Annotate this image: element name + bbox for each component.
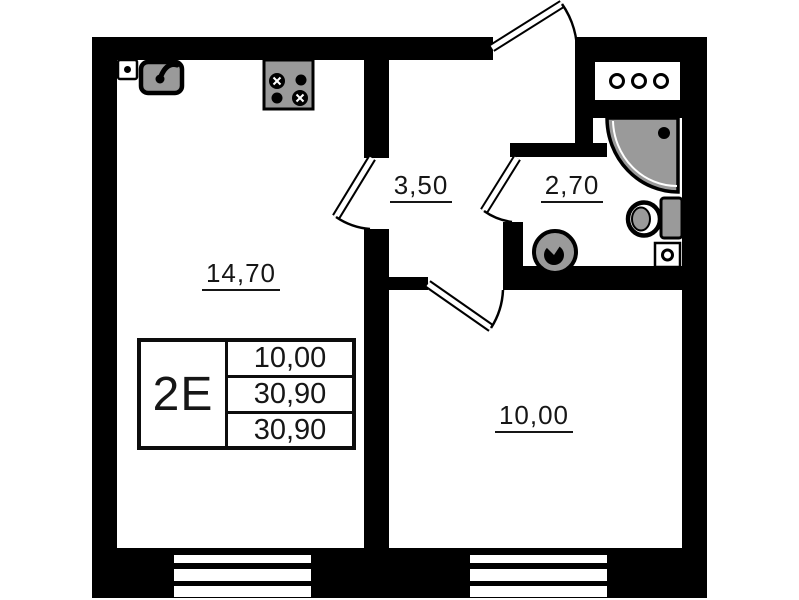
floor-plan: 14,70 3,50 2,70 10,00 2E 10,00 30,90 30,… <box>0 0 799 600</box>
entrance-door-icon <box>492 4 577 56</box>
toilet-icon <box>628 198 682 238</box>
stove-icon <box>264 60 313 109</box>
vent-grille-icon <box>595 62 680 100</box>
washbasin-icon <box>534 231 576 273</box>
shower-head-icon <box>658 127 670 139</box>
stamp-total-area: 30,90 <box>228 378 352 414</box>
living-room-door-icon <box>336 158 372 229</box>
bathroom-door-icon <box>484 158 517 222</box>
apartment-type-label: 2E <box>141 342 228 446</box>
stamp-total-area-with-balcony: 30,90 <box>228 414 352 447</box>
area-label-bedroom: 10,00 <box>489 400 579 433</box>
area-label-kitchen-living: 14,70 <box>196 258 286 291</box>
area-label-bathroom: 2,70 <box>532 170 612 203</box>
drain-box-icon <box>655 243 680 267</box>
kitchen-sink-icon <box>141 62 182 93</box>
shower-cabin-icon <box>607 118 678 192</box>
bedroom-door-icon <box>428 284 503 328</box>
apartment-stamp: 2E 10,00 30,90 30,90 <box>137 338 356 450</box>
power-outlet-icon <box>118 60 137 79</box>
stamp-living-area: 10,00 <box>228 342 352 378</box>
area-label-hallway: 3,50 <box>381 170 461 203</box>
fixtures-layer <box>0 0 799 600</box>
